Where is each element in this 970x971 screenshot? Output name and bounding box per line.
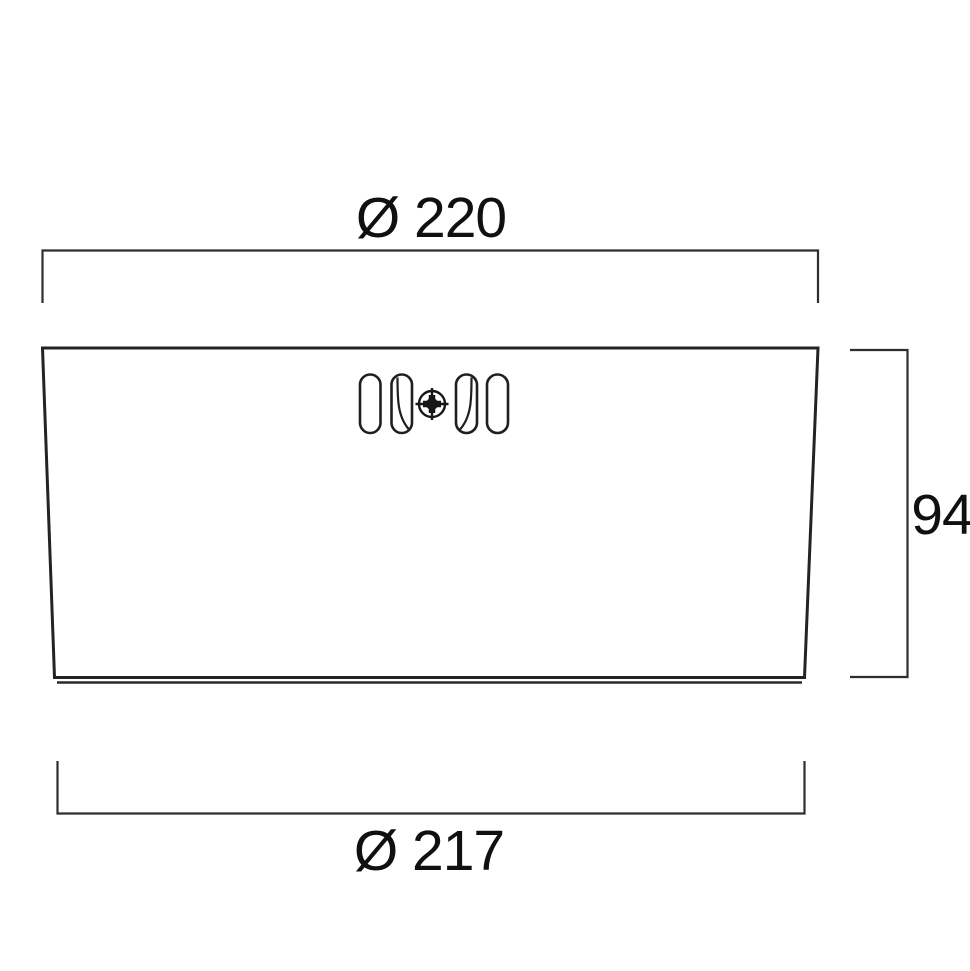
height-dimension-bracket — [850, 350, 908, 677]
top-dimension-bracket — [43, 251, 819, 304]
vent-slot-icon — [392, 375, 413, 434]
dimension-bottom-diameter: Ø 217 — [58, 761, 805, 883]
phillips-screw-head-icon — [416, 388, 449, 420]
top-diameter-label: Ø 220 — [356, 186, 506, 250]
vent-slot-icon — [360, 375, 381, 434]
dimension-height: 94 — [850, 350, 970, 677]
bottom-dimension-bracket — [58, 761, 805, 814]
technical-drawing-canvas: Ø 220 — [0, 0, 970, 971]
bottom-diameter-label: Ø 217 — [354, 819, 504, 883]
vent-slot-icon — [456, 375, 477, 434]
dimension-drawing: Ø 220 — [0, 0, 970, 971]
dimension-top-diameter: Ø 220 — [43, 186, 819, 303]
height-label: 94 — [911, 483, 970, 547]
vent-slot-icon — [487, 375, 508, 434]
housing-body — [43, 348, 819, 683]
